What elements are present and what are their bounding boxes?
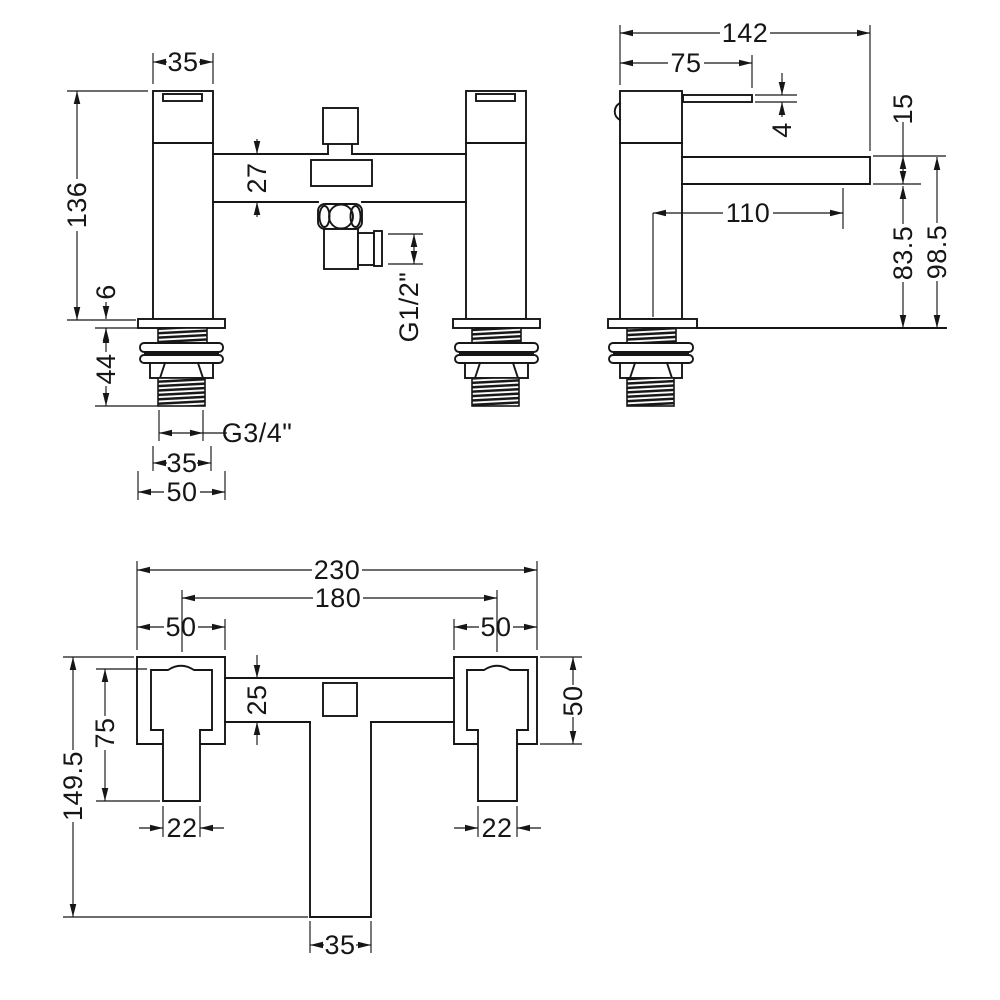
dimension-label: 25 (242, 684, 272, 715)
base-plate (608, 319, 697, 328)
diverter-top (323, 683, 357, 716)
diverter-base (311, 160, 372, 186)
shower-outlet-body (324, 229, 358, 269)
thread-tail (627, 378, 674, 406)
dimension-label: 22 (166, 813, 197, 843)
shower-outlet-hub (318, 204, 362, 229)
dimension-label: 50 (165, 612, 196, 642)
tap-dimension-drawing: 3513627644G3/4"3550G1/2"1427541101583.59… (0, 0, 1000, 1000)
dimension-label: 35 (167, 47, 198, 77)
dimension-label: 136 (62, 182, 92, 229)
washer-bottom (609, 355, 693, 363)
dimension-label: 149.5 (58, 751, 88, 821)
diverter-knob (323, 108, 358, 144)
dimension-label: 6 (91, 284, 121, 300)
hex-nut (150, 363, 213, 378)
shower-outlet-ring (374, 231, 382, 266)
thread-upper (472, 328, 521, 343)
dimension-label: G1/2" (394, 272, 424, 343)
left-tap-body (153, 91, 213, 319)
dimension-label: 230 (314, 555, 361, 585)
dimension-label: 15 (888, 93, 918, 124)
thread-upper (158, 328, 207, 343)
dimension-label: 35 (324, 930, 355, 960)
washer-bottom (455, 355, 538, 363)
dimension-label: 22 (481, 813, 512, 843)
thread-upper (627, 328, 676, 343)
thread-tail (158, 378, 205, 406)
dimension-label: 83.5 (888, 226, 918, 281)
dimension-label: 110 (726, 198, 771, 228)
tap-body (620, 91, 682, 319)
handle-lever (683, 95, 752, 102)
washer-top (140, 343, 223, 352)
hex-nut (465, 363, 528, 378)
dimension-label: 75 (670, 48, 701, 78)
base-plate (138, 319, 225, 328)
dimension-label: 50 (558, 685, 588, 716)
dimension-label: 4 (767, 122, 797, 138)
hex-nut (620, 363, 682, 378)
dimension-label: 180 (315, 583, 362, 613)
right-tap-body (466, 91, 526, 319)
dimension-label: 75 (90, 717, 120, 748)
washer-top (609, 343, 693, 352)
dimension-label: 44 (91, 353, 121, 384)
shower-outlet-neck (358, 233, 374, 265)
dimension-label: 142 (722, 18, 769, 48)
thread-tail (472, 378, 519, 406)
washer-bottom (140, 355, 223, 363)
dimension-label: 50 (166, 477, 197, 507)
dimension-label: G3/4" (222, 418, 293, 448)
dimension-label: 50 (480, 612, 511, 642)
dimension-label: 98.5 (922, 225, 952, 280)
base-plate (453, 319, 540, 328)
drawing-page: 3513627644G3/4"3550G1/2"1427541101583.59… (0, 0, 1000, 1000)
washer-top (455, 343, 538, 352)
dimension-label: 27 (242, 162, 272, 193)
dimension-label: 35 (166, 448, 197, 478)
